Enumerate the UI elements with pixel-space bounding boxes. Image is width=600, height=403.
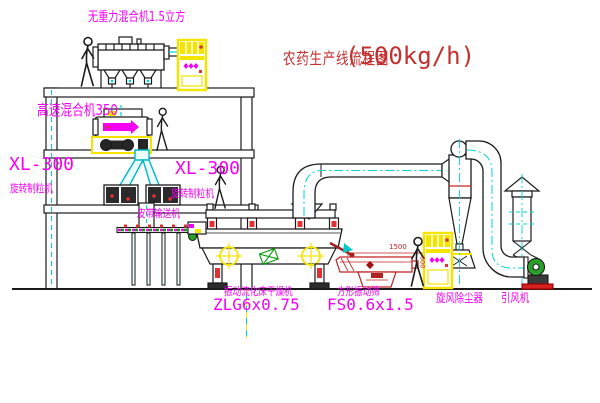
no-gravity-mixer	[93, 37, 178, 88]
dryer-spring-mounts	[208, 218, 339, 229]
label-granulator-name-right: 旋转制粒机	[171, 188, 214, 199]
dryer-feed-inlet	[188, 222, 206, 234]
label-fan: 引风机	[501, 292, 529, 304]
dimension-sieve-height: 600	[419, 256, 426, 268]
label-cyclone: 旋风除尘器	[436, 292, 483, 304]
fluid-bed-dryer	[188, 204, 342, 289]
label-dryer-model: ZLG6x0.75	[213, 297, 300, 313]
dimension-sieve-length: 1500	[389, 244, 407, 251]
control-cabinet-ground	[424, 233, 452, 288]
person-second-floor-left	[157, 108, 168, 150]
label-granulator-model-left: XL-300	[9, 156, 74, 174]
label-sieve-model: FS0.6x1.5	[327, 297, 414, 313]
belt-conveyor	[117, 225, 197, 286]
label-belt-conveyor: 皮带输送机	[137, 208, 180, 219]
page-title-capacity: (500kg/h)	[345, 44, 475, 68]
square-sieve	[330, 243, 424, 287]
control-cabinet-top	[178, 40, 206, 90]
person-top-floor	[81, 38, 93, 87]
mixer-discharge-funnels	[104, 70, 156, 88]
label-granulator-name-left: 旋转制粒机	[10, 183, 53, 194]
drawing-canvas: 无重力混合机1.5立方 高速混合机350 XL-300 旋转制粒机 XL-300…	[0, 0, 600, 403]
induced-draft-fan	[522, 257, 553, 289]
granulator-left	[104, 185, 138, 205]
label-no-gravity-mixer: 无重力混合机1.5立方	[88, 11, 185, 24]
label-high-speed-mixer: 高速混合机350	[37, 103, 118, 118]
label-granulator-model-right: XL-300	[175, 160, 240, 178]
